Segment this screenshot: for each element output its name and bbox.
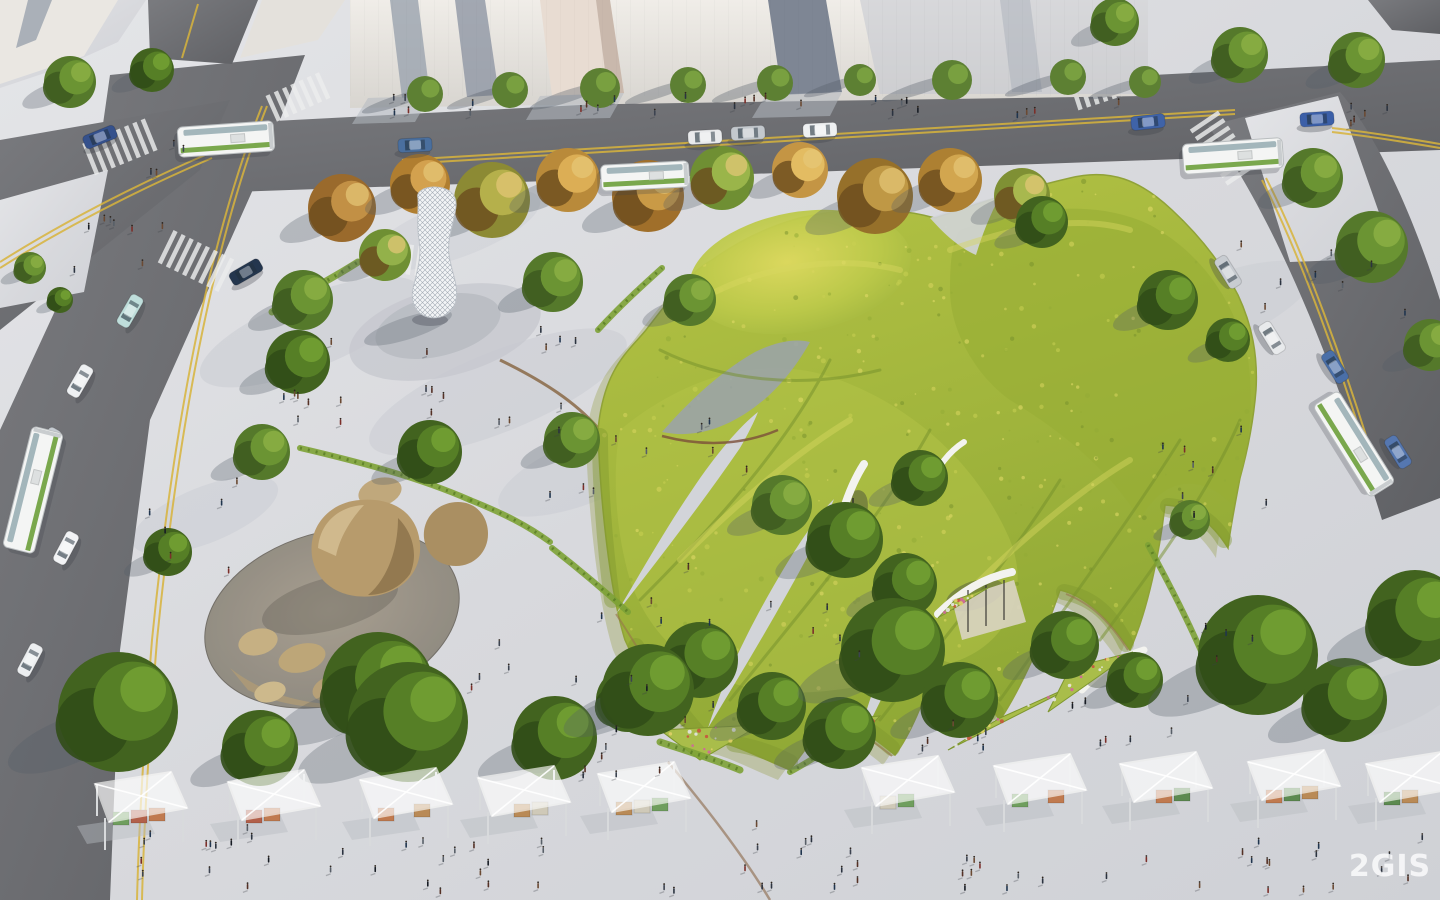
park-rendering: 2GIS: [0, 0, 1440, 900]
watermark: 2GIS: [1349, 849, 1431, 884]
bus: [596, 161, 689, 197]
aerial-park-scene: 2GIS: [0, 0, 1440, 900]
bus: [173, 121, 275, 163]
bus: [1178, 138, 1284, 180]
